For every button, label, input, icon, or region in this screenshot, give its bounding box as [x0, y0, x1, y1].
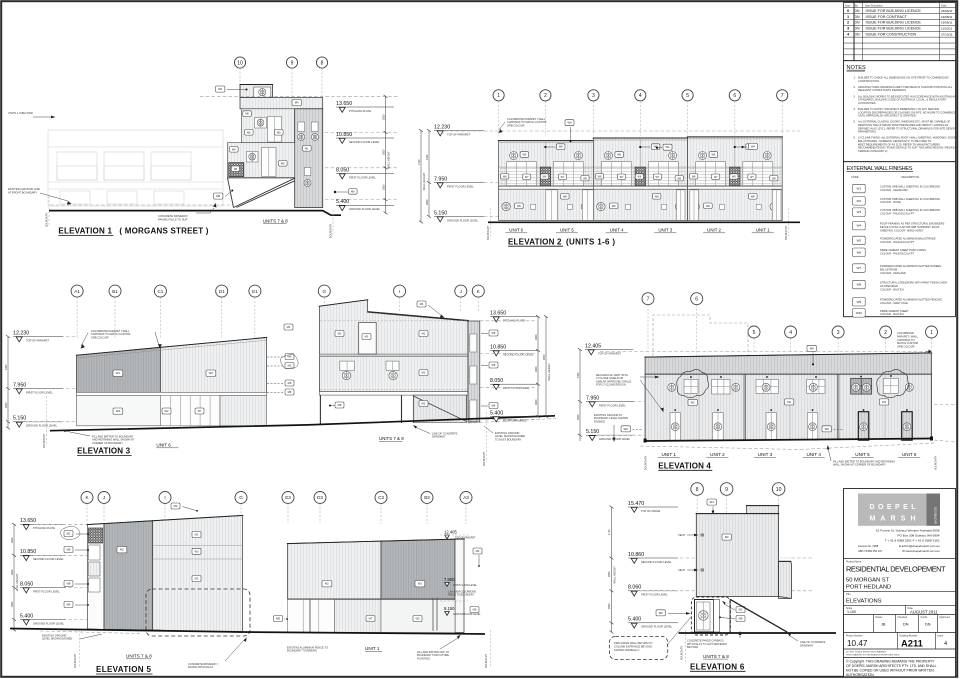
- svg-text:W2: W2: [165, 409, 169, 413]
- svg-text:W4: W4: [710, 500, 715, 504]
- svg-text:W7: W7: [561, 176, 565, 179]
- svg-text:TOP OF PARAPET: TOP OF PARAPET: [26, 338, 49, 342]
- svg-text:UNIT 1: UNIT 1: [365, 646, 380, 651]
- svg-text:UNITS 1-6 BEYOND: UNITS 1-6 BEYOND: [8, 111, 33, 115]
- svg-text:Drawn: Drawn: [876, 616, 884, 619]
- svg-text:COLOUR - GREY PALE: COLOUR - GREY PALE: [880, 301, 908, 305]
- svg-text:10.860: 10.860: [628, 552, 644, 558]
- svg-text:9250: 9250: [543, 354, 546, 360]
- svg-text:FIBRE CEMENT SHEET PAINT FINIS: FIBRE CEMENT SHEET PAINT FINISH: [880, 248, 926, 252]
- svg-text:W6: W6: [612, 204, 616, 208]
- svg-text:UNITS 7 & 8: UNITS 7 & 8: [263, 218, 288, 223]
- svg-text:COLORBOND: COLORBOND: [897, 331, 914, 335]
- svg-text:7.950: 7.950: [434, 176, 447, 182]
- svg-text:W6: W6: [517, 204, 521, 208]
- svg-text:7.950: 7.950: [444, 577, 455, 582]
- svg-text:POWDERCOATED ALUMINIUM SLATTED: POWDERCOATED ALUMINIUM SLATTED SCREEN: [880, 264, 941, 268]
- svg-text:TOP OF PARAPET: TOP OF PARAPET: [447, 132, 470, 136]
- svg-text:M6: M6: [492, 363, 496, 367]
- svg-text:M5: M5: [277, 130, 281, 134]
- svg-text:W7: W7: [620, 176, 624, 179]
- svg-text:W8: W8: [598, 175, 602, 178]
- svg-text:DESCRIPTION: DESCRIPTION: [902, 175, 920, 179]
- svg-text:5.150: 5.150: [444, 606, 455, 611]
- svg-text:M2: M2: [422, 402, 426, 406]
- svg-text:M4: M4: [420, 302, 424, 306]
- svg-text:UNIT 5: UNIT 5: [855, 452, 870, 457]
- svg-text:COLUMN ENTRANCE BEYOND: COLUMN ENTRANCE BEYOND: [614, 644, 652, 648]
- svg-text:DN: DN: [855, 33, 861, 37]
- svg-text:12.405: 12.405: [585, 343, 601, 349]
- svg-text:M8: M8: [67, 582, 71, 586]
- svg-text:M4: M4: [810, 346, 814, 350]
- svg-text:W6: W6: [857, 250, 862, 254]
- svg-text:SHEETING COLOUR - BIRCH GREY: SHEETING COLOUR - BIRCH GREY: [880, 228, 924, 232]
- svg-text:MATCH CUSTOM: MATCH CUSTOM: [897, 341, 918, 345]
- svg-text:W1: W1: [116, 371, 121, 375]
- svg-text:M2: M2: [422, 332, 426, 336]
- svg-text:W8: W8: [772, 177, 776, 180]
- svg-text:UNIT 4: UNIT 4: [610, 228, 624, 233]
- svg-text:M2: M2: [338, 332, 342, 336]
- svg-text:W6: W6: [543, 176, 547, 179]
- svg-text:B1: B1: [112, 289, 118, 294]
- svg-text:M8: M8: [338, 403, 342, 407]
- svg-text:COLOUR - PALE EUCALYPT: COLOUR - PALE EUCALYPT: [880, 212, 914, 216]
- svg-text:E1: E1: [252, 289, 258, 294]
- svg-text:DASHED: DASHED: [594, 419, 605, 423]
- svg-text:AS SPECIFIED: AS SPECIFIED: [880, 284, 898, 288]
- svg-text:10.850: 10.850: [20, 549, 36, 555]
- svg-text:CORNER OF BOUNDARY: CORNER OF BOUNDARY: [92, 441, 123, 445]
- svg-text:RELEVANT CONSULTANTS DRAWINGS.: RELEVANT CONSULTANTS DRAWINGS.: [858, 88, 907, 92]
- svg-text:DN: DN: [925, 623, 931, 627]
- svg-text:FIRST FLOOR LEVEL: FIRST FLOOR LEVEL: [447, 184, 474, 188]
- svg-text:7130: 7130: [418, 159, 421, 165]
- svg-text:FENCE TO BOUNDARY: FENCE TO BOUNDARY: [448, 594, 475, 597]
- svg-text:STRUCTURAL STEELWORK WITH PAIN: STRUCTURAL STEELWORK WITH PAINT FINISH O…: [880, 281, 947, 285]
- svg-text:WALL HEIGHT: WALL HEIGHT: [387, 151, 391, 169]
- svg-text:M6: M6: [232, 147, 236, 151]
- svg-text:CONSTRUCTION.: CONSTRUCTION.: [858, 79, 880, 83]
- svg-text:W8: W8: [751, 194, 755, 198]
- svg-text:7.950: 7.950: [586, 395, 599, 401]
- svg-text:BOUNDARY: BOUNDARY: [43, 434, 46, 448]
- svg-text:61 Forrest St, Subiaco Weste: 61 Forrest St, Subiaco Western Australia…: [876, 528, 940, 532]
- svg-text:9: 9: [291, 60, 294, 66]
- svg-text:DRIVEWAY: DRIVEWAY: [800, 643, 814, 647]
- svg-text:Issue Description: Issue Description: [865, 5, 883, 8]
- svg-text:W6: W6: [706, 204, 710, 208]
- svg-text:Issue: Issue: [938, 634, 944, 637]
- svg-text:C1: C1: [157, 289, 163, 294]
- svg-text:W1: W1: [857, 187, 862, 191]
- svg-text:M7: M7: [198, 409, 202, 413]
- svg-text:WALL HEIGHT: WALL HEIGHT: [422, 172, 426, 190]
- svg-text:AUGUST 2011: AUGUST 2011: [910, 609, 938, 614]
- svg-text:D3: D3: [317, 495, 323, 500]
- svg-text:W2: W2: [857, 199, 862, 203]
- svg-text:VENT: VENT: [678, 568, 686, 572]
- svg-text:FIRST FLOOR LEVEL: FIRST FLOOR LEVEL: [349, 175, 376, 179]
- svg-text:PLATFORM LEVEL: PLATFORM LEVEL: [503, 418, 527, 422]
- svg-text:W7: W7: [857, 266, 862, 270]
- svg-text:1: 1: [930, 330, 933, 336]
- svg-text:M4: M4: [476, 549, 480, 553]
- svg-text:J: J: [103, 495, 105, 500]
- svg-text:UNIT 2: UNIT 2: [707, 228, 721, 233]
- svg-text:DN: DN: [855, 21, 861, 25]
- svg-text:BOUNDARY: BOUNDARY: [330, 224, 333, 238]
- svg-text:M9: M9: [473, 608, 477, 612]
- svg-text:WALL SHOWN AT CORNER OF BOUNDA: WALL SHOWN AT CORNER OF BOUNDARY: [833, 463, 886, 467]
- svg-text:5.400: 5.400: [628, 617, 641, 623]
- svg-text:3.: 3.: [854, 94, 856, 98]
- svg-text:W8: W8: [692, 175, 696, 178]
- svg-text:3: 3: [837, 330, 840, 336]
- svg-text:2800: 2800: [535, 399, 538, 405]
- svg-text:NOT BE COPIED OR USED WITHOUT: NOT BE COPIED OR USED WITHOUT PRIOR WRIT…: [846, 668, 934, 672]
- svg-text:© Copyright. THIS DRAWING REMA: © Copyright. THIS DRAWING REMAINS THE PR…: [846, 659, 935, 663]
- svg-text:CUSTOM ORB WALL SHEETING IN CO: CUSTOM ORB WALL SHEETING IN COLORBOND: [880, 185, 940, 189]
- svg-text:UNITS 7 & 8: UNITS 7 & 8: [126, 654, 152, 659]
- svg-text:12.230: 12.230: [13, 330, 29, 336]
- svg-text:UNTIL APPROVAL BY ARCHITECT I: UNTIL APPROVAL BY ARCHITECT IS GRANTED.: [858, 114, 917, 118]
- svg-text:11/10/11: 11/10/11: [941, 27, 953, 31]
- svg-text:M6: M6: [245, 112, 249, 116]
- svg-text:W6: W6: [522, 153, 526, 157]
- svg-text:CUSTOM ORB WALL SHEETING IN CO: CUSTOM ORB WALL SHEETING IN COLORBOND: [880, 197, 940, 201]
- svg-text:2800: 2800: [382, 149, 385, 155]
- svg-text:G: G: [239, 495, 243, 500]
- svg-text:TERRAIN CATEGORY 2): TERRAIN CATEGORY 2): [858, 149, 888, 153]
- svg-text:W7: W7: [714, 176, 718, 179]
- svg-text:WALL HEIGHT: WALL HEIGHT: [547, 363, 551, 381]
- svg-text:UNIT 1: UNIT 1: [756, 228, 770, 233]
- svg-text:W2: W2: [691, 400, 696, 404]
- svg-text:BEYOND: BEYOND: [687, 645, 698, 649]
- svg-text:FIRST FLOOR LEVEL: FIRST FLOOR LEVEL: [641, 593, 668, 597]
- svg-text:UNIT 4: UNIT 4: [806, 452, 821, 457]
- svg-text:J: J: [460, 289, 462, 294]
- svg-text:W8: W8: [559, 145, 563, 149]
- svg-text:I: I: [164, 495, 165, 500]
- svg-text:M7: M7: [369, 617, 373, 621]
- svg-text:W7: W7: [656, 176, 660, 179]
- svg-text:0: 0: [847, 8, 849, 13]
- svg-text:CODE: CODE: [851, 175, 859, 179]
- svg-text:UNIT 3: UNIT 3: [758, 452, 773, 457]
- svg-text:M8: M8: [216, 194, 220, 198]
- svg-text:W3: W3: [195, 549, 199, 553]
- svg-text:W4: W4: [857, 224, 862, 228]
- svg-text:1.: 1.: [854, 76, 856, 80]
- svg-text:COLOUR - DUNE: COLOUR - DUNE: [880, 200, 901, 204]
- svg-text:BOUNDARY: BOUNDARY: [935, 456, 938, 470]
- svg-text:W10: W10: [856, 311, 862, 315]
- svg-text:PO Box 308 Subiaco WA 6904: PO Box 308 Subiaco WA 6904: [897, 533, 939, 537]
- svg-text:W7: W7: [750, 176, 754, 179]
- svg-text:M2: M2: [218, 87, 222, 91]
- svg-text:2800: 2800: [577, 414, 580, 420]
- svg-text:FOR CYCLONE REGION: FOR CYCLONE REGION: [596, 383, 626, 387]
- svg-text:2800: 2800: [11, 537, 14, 543]
- svg-text:CAPPINGS TO: CAPPINGS TO: [897, 338, 915, 342]
- svg-text:2800: 2800: [535, 334, 538, 340]
- svg-text:W9: W9: [825, 427, 830, 431]
- svg-text:M1: M1: [365, 335, 369, 339]
- svg-text:CUSTOM ORB WALL SHEETING IN CO: CUSTOM ORB WALL SHEETING IN COLORBOND: [880, 208, 940, 212]
- svg-text:ABN 73 883 455 197: ABN 73 883 455 197: [858, 549, 883, 553]
- svg-text:ORB COLOUR: ORB COLOUR: [507, 123, 525, 127]
- svg-text:15.470: 15.470: [628, 501, 644, 507]
- svg-text:G: G: [323, 289, 327, 294]
- svg-text:DN: DN: [855, 15, 861, 19]
- svg-text:7: 7: [647, 297, 650, 303]
- svg-text:C3: C3: [378, 495, 384, 500]
- svg-text:Approved: Approved: [939, 616, 950, 619]
- svg-text:Project Name: Project Name: [846, 561, 862, 564]
- svg-text:W8: W8: [583, 177, 587, 180]
- svg-text:SECOND FLOOR LEVEL: SECOND FLOOR LEVEL: [349, 140, 380, 144]
- svg-text:FIRST FLOOR LEVEL: FIRST FLOOR LEVEL: [33, 589, 60, 593]
- svg-text:5.150: 5.150: [434, 210, 447, 216]
- svg-text:10.850: 10.850: [490, 344, 506, 350]
- svg-text:2650: 2650: [382, 184, 385, 190]
- svg-text:W6: W6: [711, 153, 715, 157]
- svg-text:TO EAST BOUNDARY: TO EAST BOUNDARY: [495, 437, 522, 441]
- svg-text:M6: M6: [351, 190, 355, 194]
- svg-text:10.850: 10.850: [336, 132, 352, 138]
- svg-text:ELEVATION 3: ELEVATION 3: [77, 447, 131, 456]
- svg-text:E3: E3: [285, 495, 291, 500]
- svg-text:ISSUE FOR BUILDING LICENCE: ISSUE FOR BUILDING LICENCE: [866, 9, 922, 13]
- svg-text:W8: W8: [503, 175, 507, 178]
- svg-text:COLOUR - BALTICA: COLOUR - BALTICA: [880, 312, 904, 316]
- svg-text:A1: A1: [74, 289, 80, 294]
- svg-text:GROUND FLOOR LEVEL: GROUND FLOOR LEVEL: [33, 621, 65, 625]
- svg-text:M2: M2: [288, 364, 292, 368]
- svg-text:W9: W9: [624, 427, 629, 431]
- svg-text:FIRST FLOOR LEVEL: FIRST FLOOR LEVEL: [453, 584, 478, 587]
- svg-text:2800: 2800: [535, 366, 538, 372]
- svg-text:FIRE RATED WALL RETURN TO: FIRE RATED WALL RETURN TO: [614, 641, 653, 645]
- svg-text:A3: A3: [463, 495, 469, 500]
- svg-text:4: 4: [944, 641, 947, 647]
- svg-text:GROUND FLOOR LEVEL: GROUND FLOOR LEVEL: [447, 218, 479, 222]
- svg-text:ORB COLOUR: ORB COLOUR: [91, 335, 109, 339]
- svg-text:M4: M4: [295, 101, 299, 105]
- svg-text:8.050: 8.050: [20, 581, 33, 587]
- svg-text:M5: M5: [247, 130, 251, 134]
- svg-text:FIRST FLOOR LEVEL: FIRST FLOOR LEVEL: [26, 390, 53, 394]
- svg-text:2800: 2800: [5, 402, 8, 408]
- svg-text:5: 5: [686, 93, 689, 99]
- svg-text:RESIDENTIAL DEVELOPEMENT: RESIDENTIAL DEVELOPEMENT: [846, 565, 946, 574]
- svg-text:PITCHING PLATE: PITCHING PLATE: [503, 318, 525, 322]
- svg-text:M2: M2: [725, 535, 729, 539]
- svg-text:M1: M1: [120, 548, 124, 552]
- svg-text:PITCHING PLATE: PITCHING PLATE: [349, 109, 371, 113]
- svg-text:9: 9: [725, 487, 728, 493]
- svg-text:ELEVATION 1: ELEVATION 1: [58, 227, 112, 236]
- svg-text:M4: M4: [287, 325, 291, 329]
- svg-text:UNIT 3: UNIT 3: [658, 228, 672, 233]
- svg-text:W4: W4: [751, 144, 755, 148]
- svg-text:8: 8: [321, 60, 324, 66]
- svg-text:Project Number: Project Number: [846, 634, 863, 637]
- svg-text:JB: JB: [881, 623, 886, 627]
- svg-text:DN: DN: [855, 9, 861, 13]
- svg-text:2.: 2.: [854, 85, 856, 89]
- svg-text:ISSUE FOR CONTRACT: ISSUE FOR CONTRACT: [866, 15, 908, 19]
- svg-text:M2: M2: [67, 532, 71, 536]
- svg-text:8.050: 8.050: [336, 167, 349, 173]
- svg-text:COLOUR - HEDLAND: COLOUR - HEDLAND: [880, 271, 906, 275]
- svg-text:GROUND FLOOR LEVEL: GROUND FLOOR LEVEL: [26, 424, 58, 428]
- svg-text:PORT HEDLAND: PORT HEDLAND: [846, 585, 891, 591]
- svg-text:PLANTING: PLANTING: [417, 656, 430, 660]
- svg-text:AT FRONT BOUNDARY: AT FRONT BOUNDARY: [8, 190, 37, 194]
- svg-text:6: 6: [695, 297, 698, 303]
- svg-text:13.650: 13.650: [490, 310, 506, 316]
- svg-text:POWDERCOATED ALUMINIUM SLATTED: POWDERCOATED ALUMINIUM SLATTED FENCING: [880, 298, 942, 302]
- svg-text:ORB COLOUR: ORB COLOUR: [897, 345, 915, 349]
- svg-text:THIS DRAWING IS FOR READING PU: THIS DRAWING IS FOR READING PURPOSES ONL…: [846, 654, 900, 657]
- svg-text:19/08/11: 19/08/11: [941, 21, 953, 25]
- svg-text:4280: 4280: [5, 364, 8, 370]
- svg-text:ELEVATION 5: ELEVATION 5: [96, 665, 152, 674]
- svg-text:Checked: Checked: [898, 616, 908, 619]
- svg-text:M9: M9: [67, 603, 71, 607]
- svg-text:5.400: 5.400: [20, 613, 33, 619]
- svg-text:architects: architects: [932, 507, 937, 524]
- svg-text:GROUND FLOOR LEVEL: GROUND FLOOR LEVEL: [641, 625, 673, 629]
- svg-text:(UNITS 1-6 ): (UNITS 1-6 ): [566, 237, 615, 246]
- svg-text:D1: D1: [219, 289, 225, 294]
- svg-text:W6: W6: [732, 176, 736, 179]
- svg-text:W1: W1: [418, 582, 423, 586]
- svg-text:2800: 2800: [426, 199, 429, 205]
- svg-text:DO NOT SCALE FROM THIS DRAWING: DO NOT SCALE FROM THIS DRAWING.: [846, 650, 887, 653]
- svg-text:2800: 2800: [11, 569, 14, 575]
- svg-text:DETAILS WITH CUSTOM ORB 'SURFM: DETAILS WITH CUSTOM ORB 'SURFMIST' ROOF: [880, 225, 940, 229]
- svg-text:4: 4: [789, 330, 792, 336]
- svg-text:M8: M8: [288, 390, 292, 394]
- svg-text:A211: A211: [901, 637, 923, 648]
- svg-text:MARSH: MARSH: [870, 516, 918, 523]
- svg-text:BOUNDARY: BOUNDARY: [483, 452, 486, 466]
- svg-text:BOUNDARY: BOUNDARY: [487, 226, 490, 240]
- svg-text:ELEVATION 2: ELEVATION 2: [508, 237, 562, 246]
- svg-text:8.060: 8.060: [628, 585, 641, 591]
- svg-text:PAVING WITH FALLS: PAVING WITH FALLS: [188, 665, 214, 669]
- svg-text:5.: 5.: [854, 120, 856, 124]
- svg-text:W2: W2: [882, 400, 887, 404]
- svg-text:8: 8: [696, 487, 699, 493]
- svg-text:ELEVATION 4: ELEVATION 4: [658, 461, 711, 470]
- svg-text:4170: 4170: [608, 529, 611, 535]
- svg-text:ELEVATIONS: ELEVATIONS: [846, 598, 882, 604]
- svg-text:W6: W6: [617, 153, 621, 157]
- svg-text:DN: DN: [903, 623, 909, 627]
- svg-text:COLOUR - PALE EUCALYPT: COLOUR - PALE EUCALYPT: [880, 252, 914, 256]
- svg-text:TOP OF RIDGE: TOP OF RIDGE: [641, 509, 660, 513]
- svg-text:LEVEL SHOWN DASHED :: LEVEL SHOWN DASHED :: [42, 637, 74, 641]
- svg-text:BOUNDARY: BOUNDARY: [46, 213, 49, 227]
- svg-text:BOUNDARY: BOUNDARY: [785, 226, 788, 240]
- svg-text:WALL HEIGHT: WALL HEIGHT: [15, 573, 19, 591]
- svg-text:7.950: 7.950: [13, 382, 26, 388]
- svg-text:1: 1: [497, 93, 500, 99]
- svg-text:2800: 2800: [608, 571, 611, 577]
- svg-text:6.: 6.: [854, 136, 856, 140]
- svg-text:M2: M2: [325, 582, 329, 586]
- svg-text:5.400: 5.400: [490, 410, 503, 416]
- svg-text:AUTHORITIES.: AUTHORITIES.: [858, 101, 876, 105]
- svg-text:4.: 4.: [854, 107, 856, 111]
- svg-text:W3: W3: [116, 409, 121, 413]
- svg-text:W8: W8: [276, 617, 280, 621]
- svg-text:PARAPET / WALL: PARAPET / WALL: [897, 334, 919, 338]
- svg-text:W3: W3: [416, 617, 420, 621]
- svg-text:4455: 4455: [577, 372, 580, 378]
- svg-text:M2: M2: [174, 504, 178, 508]
- svg-text:AUTHORISATION.: AUTHORISATION.: [846, 673, 875, 677]
- svg-text:2800: 2800: [382, 114, 385, 120]
- svg-text:W www.doepelmarsh.com.au: W www.doepelmarsh.com.au: [902, 549, 940, 553]
- svg-text:4: 4: [639, 93, 642, 99]
- svg-text:DN: DN: [855, 27, 861, 31]
- svg-text:DRIVEWAY: DRIVEWAY: [432, 435, 446, 439]
- svg-text:W8: W8: [677, 177, 681, 180]
- svg-text:TOP OF PARAPET: TOP OF PARAPET: [598, 351, 621, 355]
- svg-text:5.150: 5.150: [13, 416, 26, 422]
- svg-text:10: 10: [237, 60, 243, 66]
- svg-text:SHOWN NOMINALLY: SHOWN NOMINALLY: [614, 648, 640, 652]
- svg-text:W9: W9: [857, 300, 862, 304]
- svg-text:13.650: 13.650: [336, 101, 352, 107]
- svg-text:2: 2: [884, 330, 887, 336]
- svg-text:( MORGANS STREET ): ( MORGANS STREET ): [119, 227, 208, 236]
- svg-text:27/10/11: 27/10/11: [941, 33, 953, 37]
- svg-text:13.650: 13.650: [20, 518, 36, 524]
- svg-text:BOUNDARY: BOUNDARY: [645, 456, 648, 470]
- svg-text:Title: Title: [846, 593, 851, 596]
- svg-text:M2: M2: [739, 608, 743, 612]
- svg-text:BALUSTRADE: BALUSTRADE: [880, 267, 898, 271]
- svg-text:5: 5: [753, 330, 756, 336]
- svg-text:SECOND FLOOR LEVEL: SECOND FLOOR LEVEL: [641, 560, 672, 564]
- svg-text:GROUND FLOOR LEVEL: GROUND FLOOR LEVEL: [349, 207, 381, 211]
- svg-text:W2: W2: [209, 371, 214, 375]
- svg-text:W4: W4: [666, 145, 670, 149]
- svg-text:UNIT 1: UNIT 1: [661, 452, 676, 457]
- svg-text:ROOF FRAMING AS PER STRUCTURAL: ROOF FRAMING AS PER STRUCTURAL ENGINEERS: [880, 222, 945, 226]
- svg-text:4330: 4330: [426, 154, 429, 160]
- svg-text:6: 6: [733, 93, 736, 99]
- svg-text:E admin@doepelmarsh.com.au: E admin@doepelmarsh.com.au: [899, 544, 940, 548]
- svg-text:OF DOEPEL MARSH ARCHITECTS PTY: OF DOEPEL MARSH ARCHITECTS PTY. LTD. AND…: [846, 664, 937, 668]
- svg-text:VENT: VENT: [678, 533, 686, 537]
- svg-text:W5: W5: [857, 239, 862, 243]
- svg-text:M8: M8: [739, 617, 743, 621]
- svg-text:UNIT 6: UNIT 6: [509, 228, 523, 233]
- svg-text:Date: Date: [942, 5, 948, 8]
- svg-text:PITCHING PLATE: PITCHING PLATE: [33, 526, 55, 530]
- svg-text:UNIT 2: UNIT 2: [710, 452, 725, 457]
- svg-text:FIBRE CEMENT SHEET: FIBRE CEMENT SHEET: [880, 309, 909, 313]
